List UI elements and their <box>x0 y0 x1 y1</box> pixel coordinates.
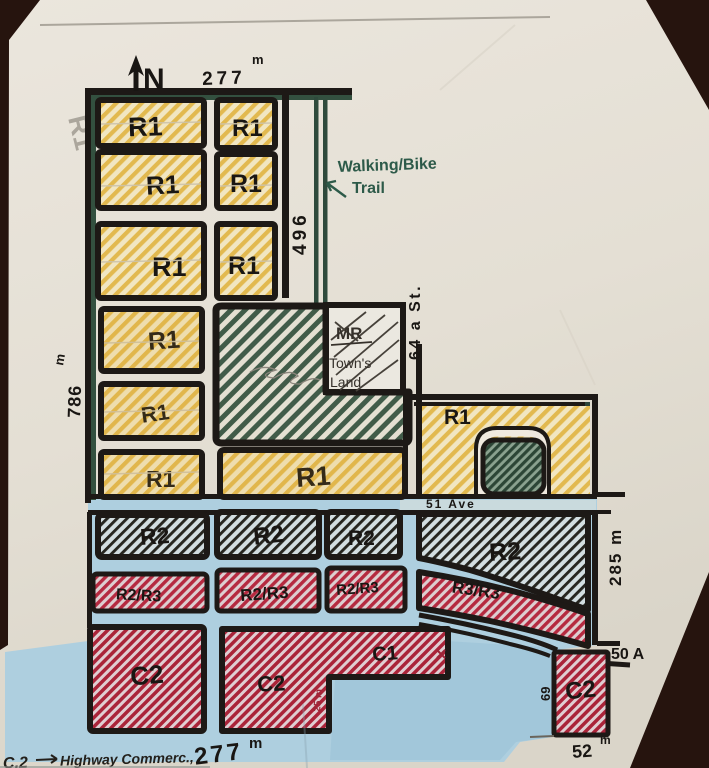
svg-text:R1: R1 <box>230 170 262 198</box>
svg-text:R2: R2 <box>348 527 375 550</box>
svg-text:R2: R2 <box>252 521 285 551</box>
svg-text:R1: R1 <box>444 406 471 429</box>
svg-text:C2: C2 <box>564 675 597 705</box>
svg-text:N: N <box>143 63 165 96</box>
svg-text:Walking/Bike: Walking/Bike <box>338 156 438 176</box>
svg-text:R2/R3: R2/R3 <box>336 579 380 599</box>
svg-text:R1: R1 <box>228 252 260 280</box>
svg-text:51 Ave: 51 Ave <box>426 497 476 511</box>
svg-text:R2: R2 <box>139 522 170 550</box>
svg-text:C2: C2 <box>129 659 165 692</box>
svg-text:285 m: 285 m <box>606 528 625 586</box>
svg-text:MR: MR <box>336 324 362 343</box>
svg-text:R2/R3: R2/R3 <box>240 583 289 605</box>
svg-text:Highway Commerc.,: Highway Commerc., <box>60 749 194 768</box>
svg-text:64 a St.: 64 a St. <box>407 284 424 360</box>
svg-text:50 A: 50 A <box>611 646 645 663</box>
svg-text:R1: R1 <box>232 115 263 142</box>
svg-text:277: 277 <box>193 738 245 768</box>
svg-text:Town's: Town's <box>329 355 371 371</box>
svg-text:C2: C2 <box>257 670 286 696</box>
svg-text:R1: R1 <box>152 252 187 282</box>
svg-text:Trail: Trail <box>352 180 385 197</box>
svg-text:786: 786 <box>64 384 85 418</box>
svg-text:496: 496 <box>290 211 311 255</box>
svg-text:69: 69 <box>538 687 553 701</box>
svg-text:52: 52 <box>571 741 592 762</box>
svg-text:m: m <box>600 733 611 747</box>
svg-text:R2: R2 <box>488 537 521 567</box>
svg-text:m: m <box>252 52 264 67</box>
svg-text:R1: R1 <box>128 111 164 142</box>
svg-text:Land: Land <box>330 374 361 390</box>
svg-text:277: 277 <box>202 67 246 90</box>
svg-text:C.2: C.2 <box>3 755 29 768</box>
svg-text:C1: C1 <box>372 642 399 666</box>
svg-text:R2/R3: R2/R3 <box>116 586 162 605</box>
svg-text:m: m <box>249 735 262 752</box>
svg-text:25 m: 25 m <box>312 688 325 712</box>
